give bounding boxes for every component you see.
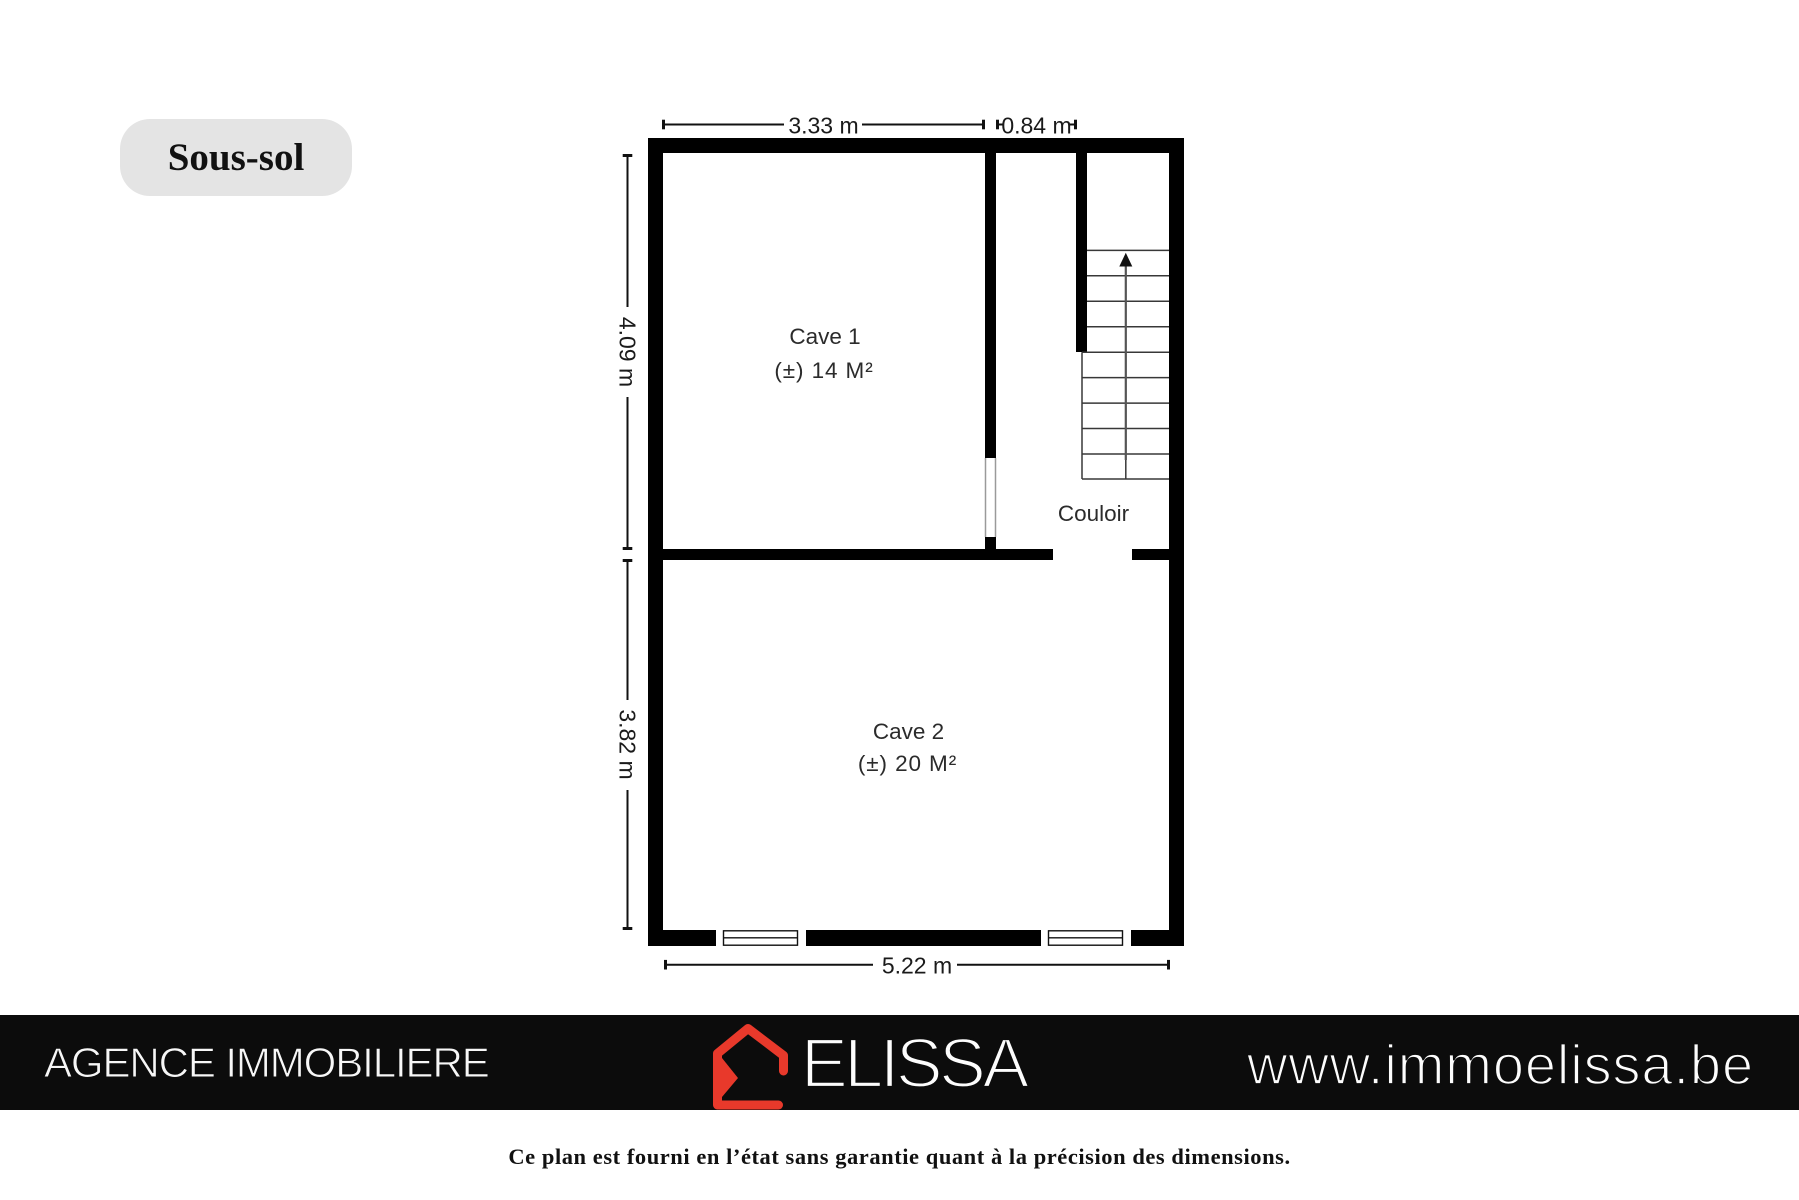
svg-text:5.22 m: 5.22 m xyxy=(882,953,952,979)
svg-text:3.33 m: 3.33 m xyxy=(788,113,858,139)
svg-text:(±) 20 M²: (±) 20 M² xyxy=(858,751,957,776)
svg-text:Couloir: Couloir xyxy=(1058,501,1130,526)
svg-text:3.82 m: 3.82 m xyxy=(615,709,641,779)
svg-text:4.09 m: 4.09 m xyxy=(615,317,641,387)
svg-text:Cave 1: Cave 1 xyxy=(789,324,860,349)
svg-text:Cave 2: Cave 2 xyxy=(873,719,944,744)
svg-text:0.84 m: 0.84 m xyxy=(1001,113,1071,139)
svg-text:(±) 14 M²: (±) 14 M² xyxy=(774,358,873,383)
